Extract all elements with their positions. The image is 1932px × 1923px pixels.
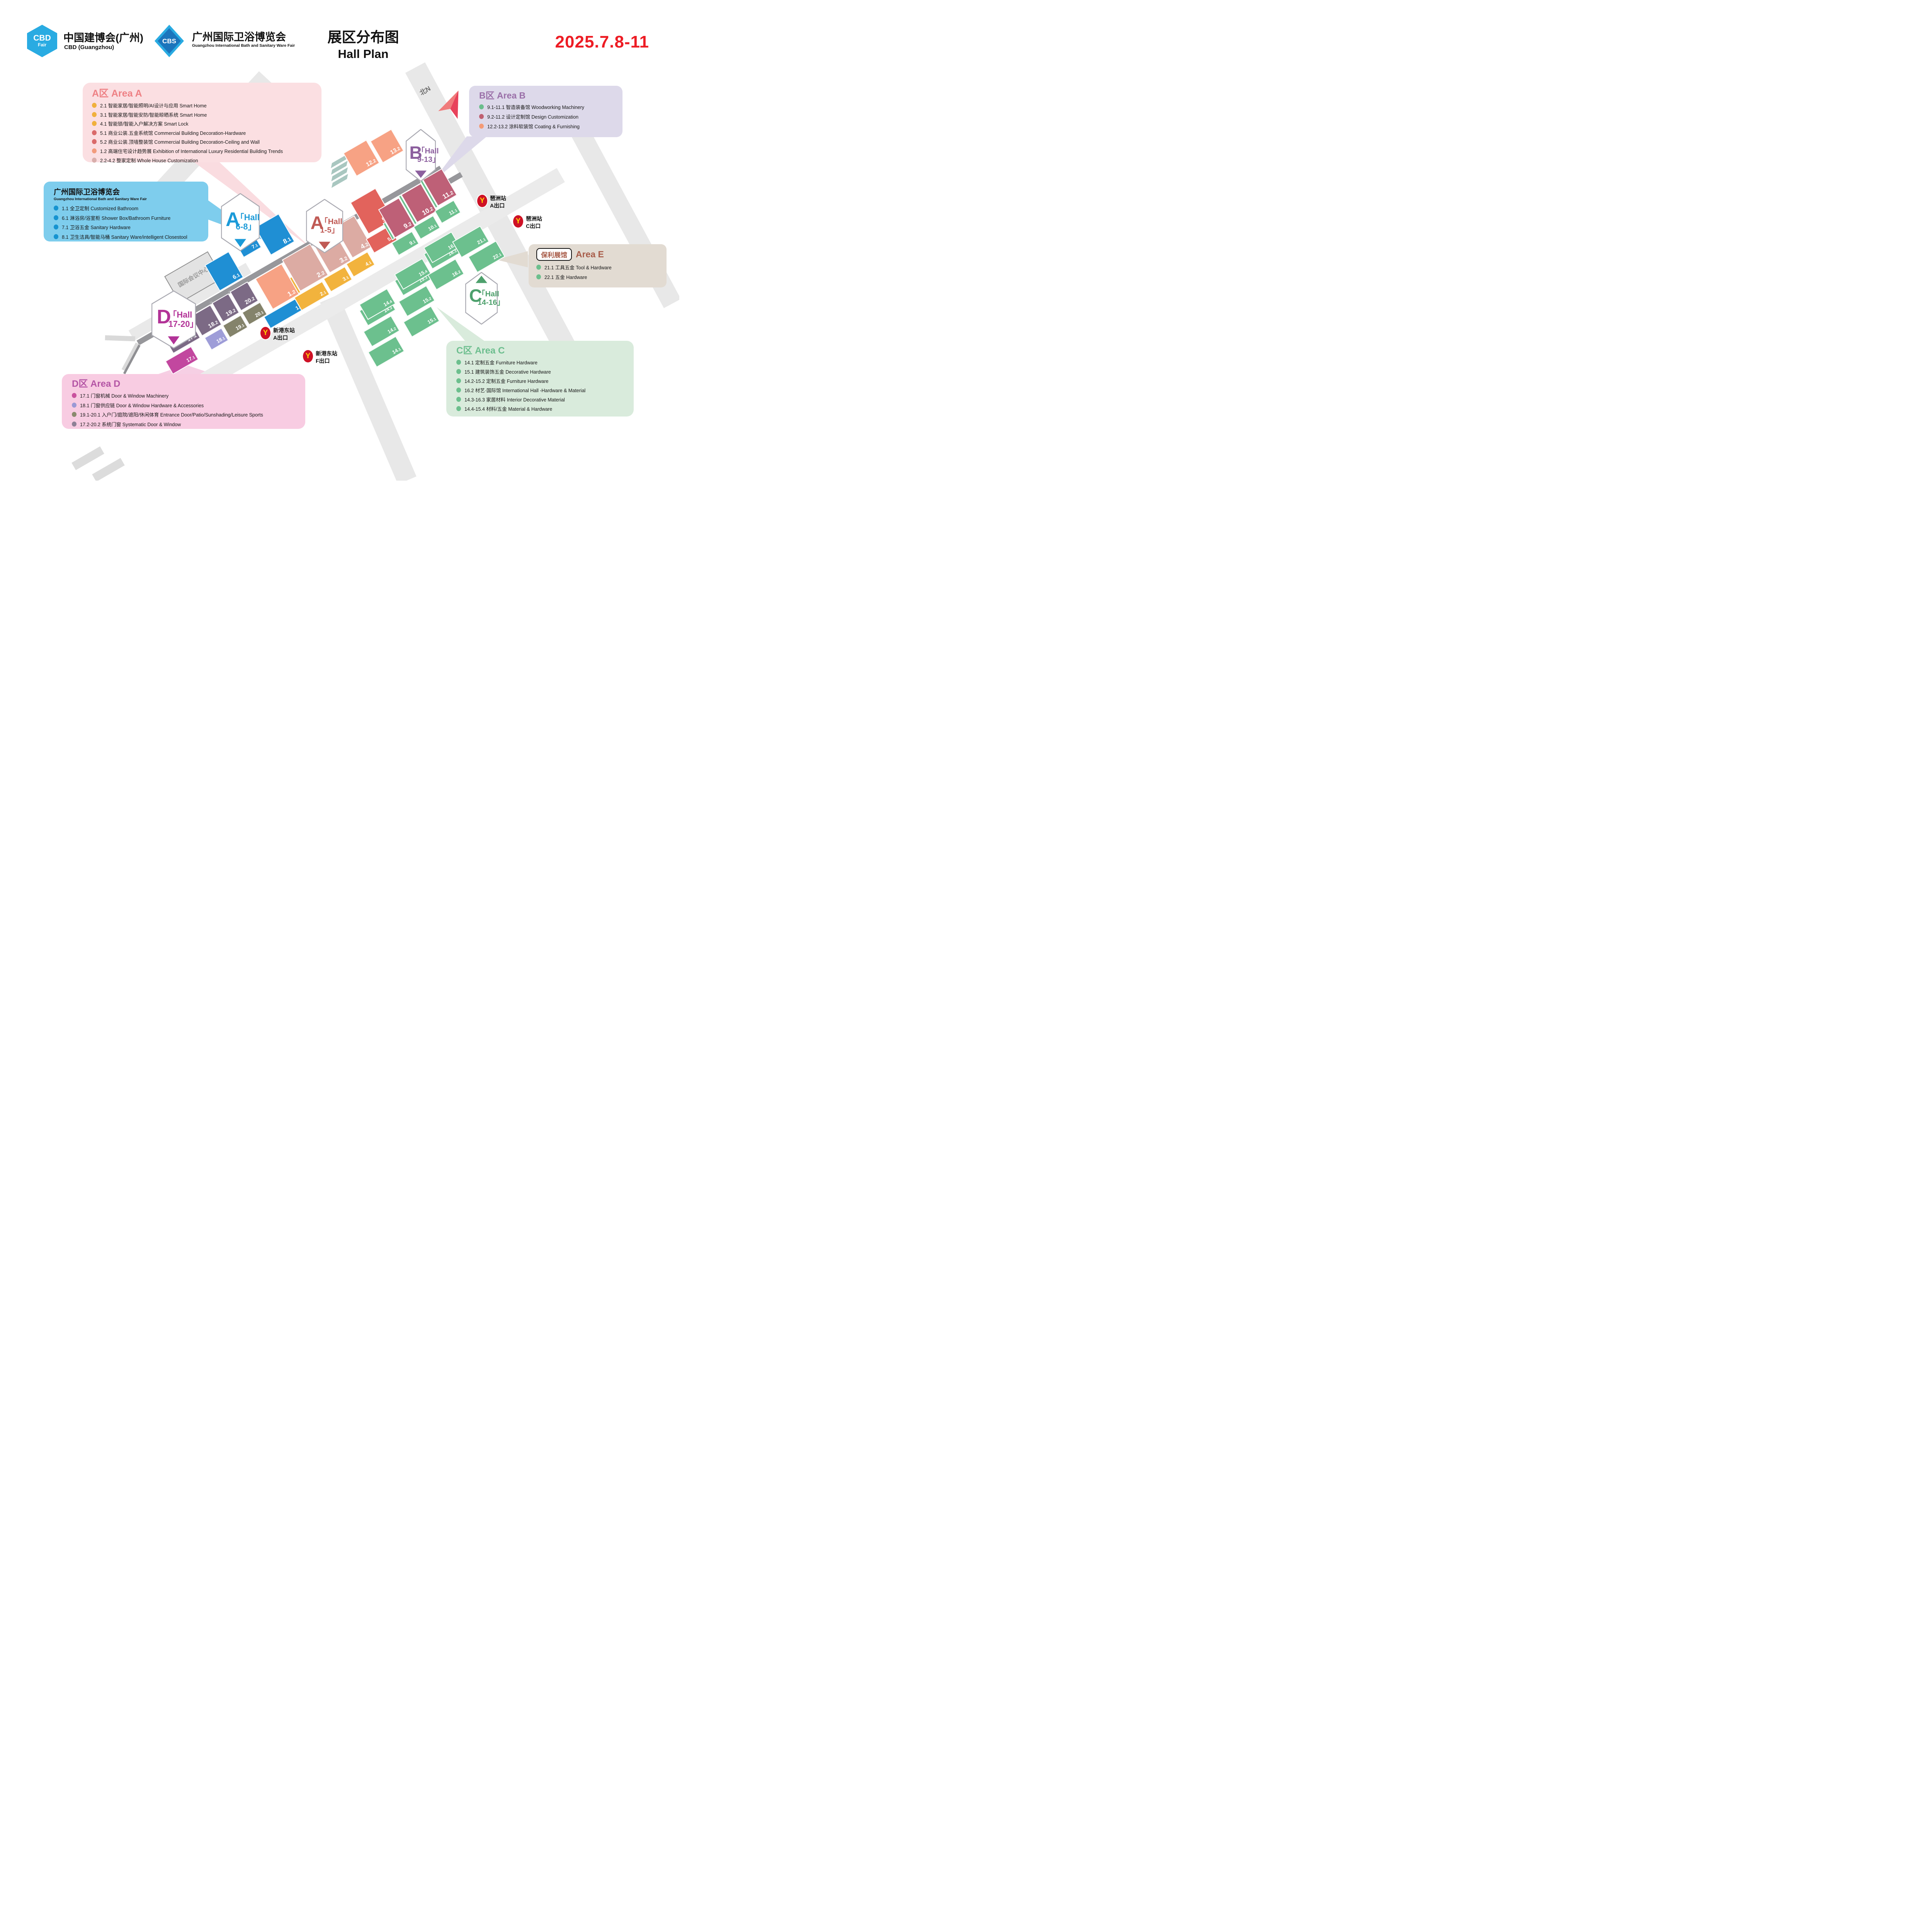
area-badge-A-1-5: A 「Hall1-5」 bbox=[306, 199, 343, 253]
legend-item: 5.1 商业公装.五金系统馆 Commercial Building Decor… bbox=[92, 129, 312, 136]
walkway-fork-arm bbox=[105, 335, 135, 342]
legend-dot-icon bbox=[72, 422, 77, 427]
legend-item-label: 18.1 门窗供应链 Door & Window Hardware & Acce… bbox=[80, 401, 204, 409]
legend-dot-icon bbox=[479, 104, 484, 109]
cbs-subtitle: Guangzhou International Bath and Sanitar… bbox=[192, 43, 295, 48]
badge-hall-range: 「Hall6-8」 bbox=[236, 213, 260, 232]
hall-label: 14.2 bbox=[386, 325, 397, 335]
area-badge-A-6-8: A 「Hall6-8」 bbox=[221, 193, 260, 251]
legend-item: 22.1 五金 Hardware bbox=[536, 273, 659, 281]
legend-dot-icon bbox=[54, 206, 58, 211]
metro-logo-icon: Y bbox=[477, 195, 487, 207]
metro-station-新港东站-F出口: Y 新港东站F出口 bbox=[303, 350, 337, 365]
area-badge-B-9-13: B 「Hall9-13」 bbox=[406, 129, 436, 182]
legend-item: 15.1 建筑装饰五金 Decorative Hardware bbox=[456, 368, 624, 375]
legend-item-label: 5.2 商业公装.顶墙整装馆 Commercial Building Decor… bbox=[100, 138, 260, 145]
legend-dot-icon bbox=[92, 130, 97, 135]
legend-item-label: 2.1 智能家居/智能照明/AI设计与应用 Smart Home bbox=[100, 102, 207, 109]
legend-item-label: 14.4-15.4 材料/五金 Material & Hardware bbox=[464, 405, 552, 412]
legend-item: 3.1 智能家居/智能安防/智能晾晒系统 Smart Home bbox=[92, 111, 312, 118]
hall-label: 15.2 bbox=[422, 295, 432, 305]
bath-title: 广州国际卫浴博览会 bbox=[54, 186, 198, 197]
hall-label: 2.2 bbox=[316, 269, 326, 279]
hall-label: 20.1 bbox=[254, 309, 265, 319]
legend-item-label: 6.1 淋浴房/浴室柜 Shower Box/Bathroom Furnitur… bbox=[62, 214, 170, 221]
hall-label: 19.2 bbox=[225, 307, 237, 318]
legend-item: 7.1 卫浴五金 Sanitary Hardware bbox=[54, 223, 198, 231]
cbd-logo: CBD Fair bbox=[27, 25, 57, 57]
legend-item: 4.1 智能锁/智能入户解决方案 Smart Lock bbox=[92, 120, 312, 127]
legend-dot-icon bbox=[456, 388, 461, 393]
badge-hall-range: 「Hall9-13」 bbox=[417, 147, 440, 164]
page-title-zh: 展区分布图 bbox=[305, 26, 421, 46]
legend-item: 2.2-4.2 整家定制 Whole House Customization bbox=[92, 156, 312, 164]
legend-dot-icon bbox=[456, 378, 461, 383]
legend-item: 14.4-15.4 材料/五金 Material & Hardware bbox=[456, 405, 624, 412]
metro-station-label: 琶洲站A出口 bbox=[490, 195, 506, 209]
cbs-logo: CBS bbox=[155, 25, 184, 57]
legend-dot-icon bbox=[536, 265, 541, 270]
legend-area-a: A区 Area A 2.1 智能家居/智能照明/AI设计与应用 Smart Ho… bbox=[83, 83, 321, 162]
road-scrap-2 bbox=[92, 458, 125, 481]
legend-dot-icon bbox=[72, 393, 77, 398]
cbs-logo-text: CBS bbox=[155, 37, 184, 45]
north-arrow: 北N bbox=[417, 76, 466, 119]
legend-item-label: 16.2 材艺·国际馆 International Hall -Hardware… bbox=[464, 386, 585, 394]
hall-plan-poster: 国际会议中心17.218.219.220.217.118.119.120.11.… bbox=[0, 0, 679, 481]
legend-item-label: 14.2-15.2 定制五金 Furniture Hardware bbox=[464, 377, 548, 384]
legend-item-label: 12.2-13.2 涂料软装馆 Coating & Furnishing bbox=[487, 122, 580, 130]
legend-item: 17.2-20.2 系统门窗 Systematic Door & Window bbox=[72, 420, 295, 428]
legend-area-c: C区 Area C 14.1 定制五金 Furniture Hardware15… bbox=[446, 341, 634, 417]
legend-item: 9.2-11.2 设计定制馆 Design Customization bbox=[479, 113, 612, 120]
hall-17.1: 17.1 bbox=[165, 346, 199, 375]
hall-label: 10.2 bbox=[421, 205, 434, 217]
legend-item: 5.2 商业公装.顶墙整装馆 Commercial Building Decor… bbox=[92, 138, 312, 145]
legend-dot-icon bbox=[92, 121, 97, 126]
hall-label: 16.2 bbox=[451, 269, 462, 278]
hall-label: 20.2 bbox=[244, 295, 256, 306]
legend-dot-icon bbox=[54, 234, 58, 239]
legend-item-label: 21.1 工具五金 Tool & Hardware bbox=[544, 264, 612, 271]
hall-label: 14.1 bbox=[391, 346, 402, 355]
hall-label: 11.1 bbox=[448, 207, 458, 217]
legend-dot-icon bbox=[456, 369, 461, 374]
legend-dot-icon bbox=[536, 274, 541, 279]
hall-label: 11.2 bbox=[441, 189, 454, 201]
legend-item: 6.1 淋浴房/浴室柜 Shower Box/Bathroom Furnitur… bbox=[54, 214, 198, 221]
metro-logo-icon: Y bbox=[260, 327, 270, 339]
metro-logo-icon: Y bbox=[513, 215, 523, 228]
legend-dot-icon bbox=[456, 397, 461, 402]
event-date: 2025.7.8-11 bbox=[533, 32, 649, 52]
hall-label: 9.1 bbox=[408, 238, 417, 247]
legend-dot-icon bbox=[479, 124, 484, 129]
badge-hall-range: 「Hall1-5」 bbox=[320, 218, 342, 235]
legend-item-label: 14.3-16.3 家居材料 Interior Decorative Mater… bbox=[464, 396, 565, 403]
legend-item-label: 22.1 五金 Hardware bbox=[544, 273, 587, 281]
legend-item-label: 1.2 高端住宅设计趋势展 Exhibition of Internationa… bbox=[100, 147, 283, 155]
legend-item: 2.1 智能家居/智能照明/AI设计与应用 Smart Home bbox=[92, 102, 312, 109]
legend-item: 9.1-11.1 智造装备馆 Woodworking Machinery bbox=[479, 103, 612, 111]
badge-hall-range: 「Hall17-20」 bbox=[168, 310, 198, 329]
page-title: 展区分布图 Hall Plan bbox=[305, 26, 421, 61]
legend-dot-icon bbox=[72, 403, 77, 408]
badge-hall-range: 「Hall14-16」 bbox=[478, 290, 505, 307]
legend-item-label: 4.1 智能锁/智能入户解决方案 Smart Lock bbox=[100, 120, 189, 127]
legend-area-e: 保利展馆 Area E 21.1 工具五金 Tool & Hardware22.… bbox=[529, 244, 667, 287]
cbd-logo-text: CBD bbox=[27, 34, 57, 42]
metro-station-琶洲站-A出口: Y 琶洲站A出口 bbox=[477, 195, 506, 209]
hall-label: 13.2 bbox=[389, 145, 401, 156]
metro-station-label: 琶洲站C出口 bbox=[526, 215, 542, 230]
legend-dot-icon bbox=[92, 103, 97, 108]
area-e-badge: 保利展馆 bbox=[536, 248, 572, 261]
legend-item: 19.1-20.1 入户门/庭院/遮阳/休闲体育 Entrance Door/P… bbox=[72, 411, 295, 418]
bath-subtitle: Guangzhou International Bath and Sanitar… bbox=[54, 197, 198, 201]
hall-label: 10.1 bbox=[427, 223, 438, 232]
legend-dot-icon bbox=[479, 114, 484, 119]
legend-item-label: 17.1 门窗机械 Door & Window Machinery bbox=[80, 392, 168, 399]
legend-item: 1.2 高端住宅设计趋势展 Exhibition of Internationa… bbox=[92, 147, 312, 155]
legend-item-label: 1.1 全卫定制 Customized Bathroom bbox=[62, 204, 138, 212]
metro-station-label: 新港东站F出口 bbox=[316, 350, 337, 365]
legend-dot-icon bbox=[54, 224, 58, 230]
hall-4.1: 4.1 bbox=[346, 252, 375, 277]
legend-item-label: 9.2-11.2 设计定制馆 Design Customization bbox=[487, 113, 578, 120]
hall-8.1: 8.1 bbox=[255, 213, 295, 255]
legend-item-label: 19.1-20.1 入户门/庭院/遮阳/休闲体育 Entrance Door/P… bbox=[80, 411, 263, 418]
legend-item-label: 17.2-20.2 系统门窗 Systematic Door & Window bbox=[80, 420, 181, 428]
metro-logo-icon: Y bbox=[303, 350, 313, 362]
cbd-logo-sub: Fair bbox=[27, 42, 57, 48]
legend-item: 1.1 全卫定制 Customized Bathroom bbox=[54, 204, 198, 212]
metro-station-琶洲站-C出口: Y 琶洲站C出口 bbox=[513, 215, 542, 230]
area-c-title: C区 Area C bbox=[456, 346, 624, 355]
legend-item: 16.2 材艺·国际馆 International Hall -Hardware… bbox=[456, 386, 624, 394]
area-e-title: Area E bbox=[576, 249, 604, 260]
legend-item-label: 7.1 卫浴五金 Sanitary Hardware bbox=[62, 223, 131, 231]
hall-label: 15.1 bbox=[427, 316, 437, 325]
metro-station-label: 新港东站A出口 bbox=[273, 327, 295, 342]
hall-label: 17.1 bbox=[185, 354, 196, 364]
legend-dot-icon bbox=[54, 215, 58, 220]
page-title-en: Hall Plan bbox=[305, 47, 421, 61]
legend-dot-icon bbox=[92, 148, 97, 153]
legend-dot-icon bbox=[92, 139, 97, 144]
legend-area-b: B区 Area B 9.1-11.1 智造装备馆 Woodworking Mac… bbox=[469, 86, 622, 137]
legend-bath-fair: 广州国际卫浴博览会 Guangzhou International Bath a… bbox=[44, 182, 208, 241]
hall-label: 18.2 bbox=[207, 319, 219, 330]
legend-dot-icon bbox=[456, 360, 461, 365]
area-a-title: A区 Area A bbox=[92, 89, 312, 99]
cbs-title: 广州国际卫浴博览会 bbox=[192, 29, 286, 44]
area-d-title: D区 Area D bbox=[72, 379, 295, 389]
legend-item: 17.1 门窗机械 Door & Window Machinery bbox=[72, 392, 295, 399]
hall-label: 4.1 bbox=[364, 259, 372, 268]
legend-item: 8.1 卫生洁具/智能马桶 Sanitary Ware/intelligent … bbox=[54, 233, 198, 240]
hall-label: 8.1 bbox=[282, 235, 293, 245]
cbd-subtitle: CBD (Guangzhou) bbox=[64, 44, 114, 51]
metro-station-新港东站-A出口: Y 新港东站A出口 bbox=[260, 327, 295, 342]
legend-item-label: 9.1-11.1 智造装备馆 Woodworking Machinery bbox=[487, 103, 584, 111]
cbd-title: 中国建博会(广州) bbox=[63, 29, 143, 44]
legend-item: 14.2-15.2 定制五金 Furniture Hardware bbox=[456, 377, 624, 384]
area-badge-C-14-16: C 「Hall14-16」 bbox=[465, 272, 498, 325]
hall-label: 21.1 bbox=[476, 236, 487, 246]
hall-label: 22.1 bbox=[492, 251, 503, 261]
hall-label: 9.2 bbox=[403, 220, 413, 230]
north-triangle-icon bbox=[434, 84, 471, 124]
hall-label: 18.1 bbox=[215, 335, 226, 345]
legend-item: 21.1 工具五金 Tool & Hardware bbox=[536, 264, 659, 271]
area-badge-D-17-20: D 「Hall17-20」 bbox=[151, 291, 196, 349]
legend-item-label: 3.1 智能家居/智能安防/智能晾晒系统 Smart Home bbox=[100, 111, 207, 118]
legend-dot-icon bbox=[456, 406, 461, 411]
area-b-title: B区 Area B bbox=[479, 91, 612, 100]
legend-dot-icon bbox=[92, 158, 97, 163]
legend-item-label: 8.1 卫生洁具/智能马桶 Sanitary Ware/intelligent … bbox=[62, 233, 187, 240]
legend-dot-icon bbox=[92, 112, 97, 117]
legend-area-d: D区 Area D 17.1 门窗机械 Door & Window Machin… bbox=[62, 374, 305, 429]
legend-item-label: 2.2-4.2 整家定制 Whole House Customization bbox=[100, 156, 198, 164]
legend-item-label: 14.1 定制五金 Furniture Hardware bbox=[464, 359, 537, 366]
legend-item: 14.3-16.3 家居材料 Interior Decorative Mater… bbox=[456, 396, 624, 403]
hall-label: 3.1 bbox=[342, 274, 350, 282]
legend-item: 14.1 定制五金 Furniture Hardware bbox=[456, 359, 624, 366]
hall-label: 2.1 bbox=[319, 289, 327, 298]
hall-label: 19.1 bbox=[235, 322, 245, 332]
legend-item-label: 15.1 建筑装饰五金 Decorative Hardware bbox=[464, 368, 551, 375]
hall-label: 12.2 bbox=[365, 158, 377, 168]
legend-item-label: 5.1 商业公装.五金系统馆 Commercial Building Decor… bbox=[100, 129, 246, 136]
legend-item: 18.1 门窗供应链 Door & Window Hardware & Acce… bbox=[72, 401, 295, 409]
legend-item: 12.2-13.2 涂料软装馆 Coating & Furnishing bbox=[479, 122, 612, 130]
legend-dot-icon bbox=[72, 412, 77, 417]
road-scrap-1 bbox=[71, 446, 104, 470]
hall-label: 6.1 bbox=[232, 272, 241, 281]
